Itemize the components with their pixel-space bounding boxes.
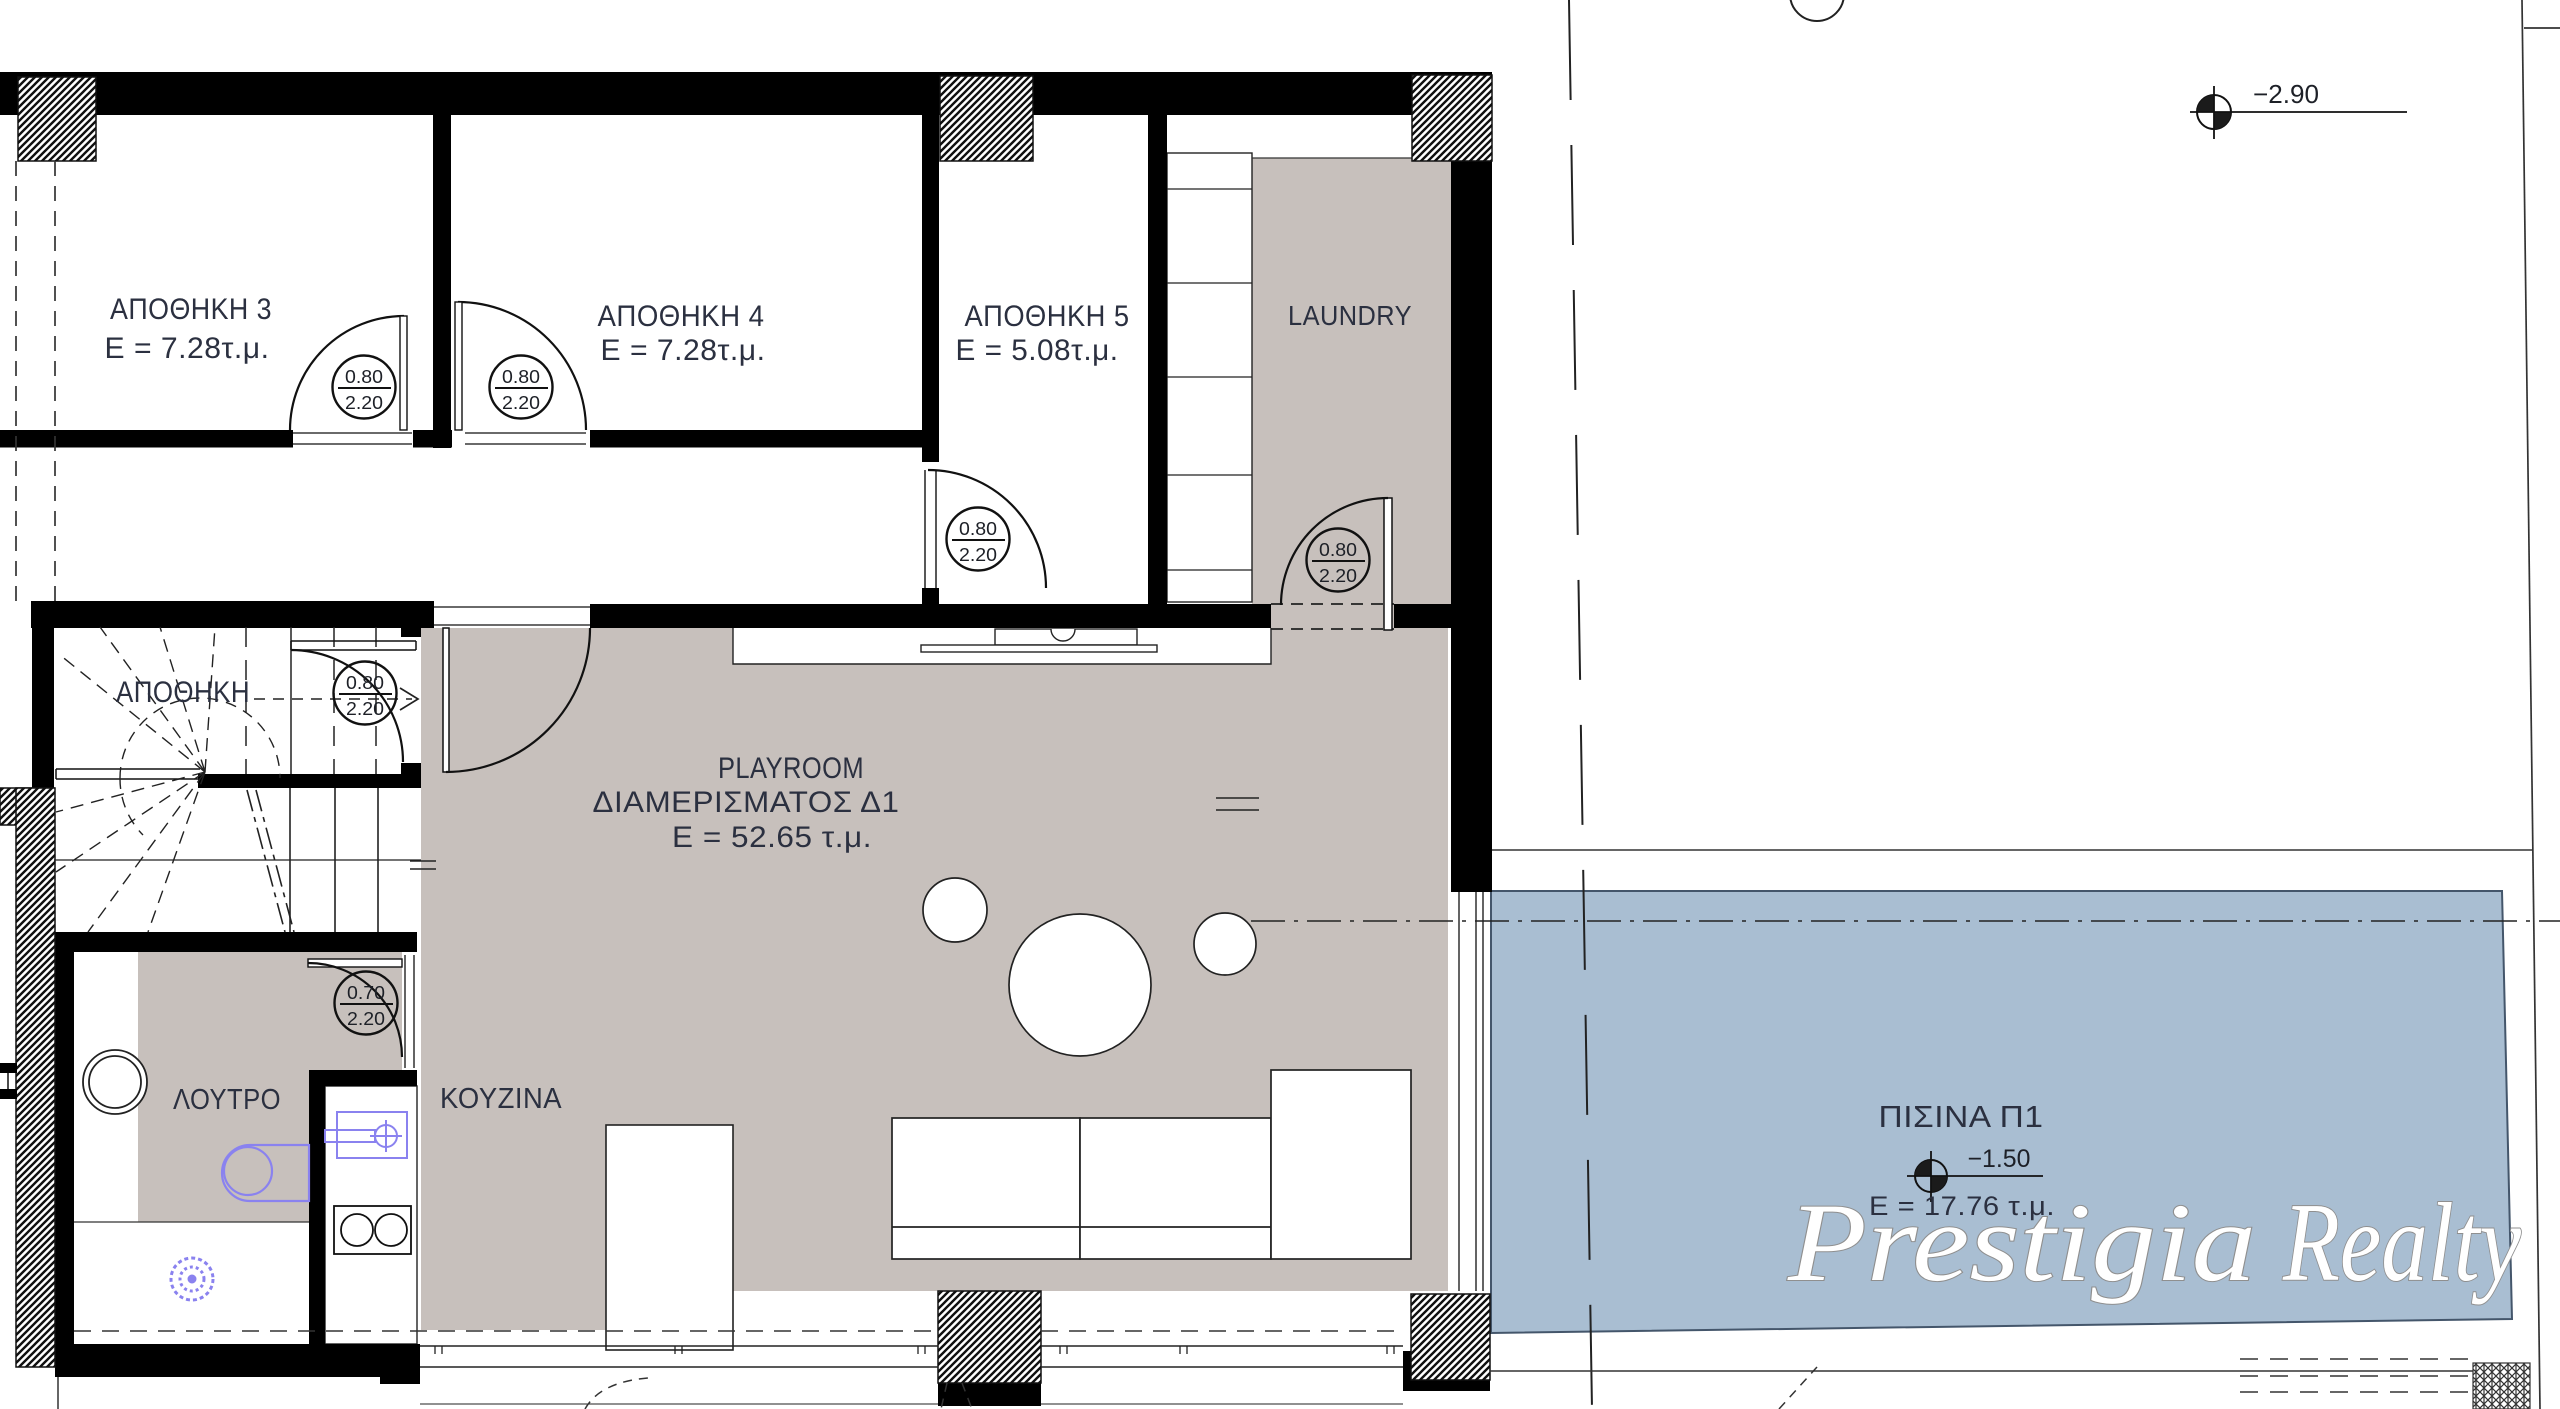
svg-text:2.20: 2.20	[347, 1009, 385, 1029]
svg-text:ΚΟΥΖΙΝΑ: ΚΟΥΖΙΝΑ	[440, 1083, 562, 1115]
svg-text:0.80: 0.80	[959, 519, 997, 539]
svg-text:2.20: 2.20	[345, 393, 383, 413]
svg-text:Ε = 52.65 τ.μ.: Ε = 52.65 τ.μ.	[672, 821, 872, 854]
svg-text:ΛΟΥΤΡΟ: ΛΟΥΤΡΟ	[173, 1084, 281, 1116]
svg-text:0.80: 0.80	[502, 367, 540, 387]
svg-text:2.20: 2.20	[1319, 566, 1357, 586]
svg-text:Ε = 5.08τ.μ.: Ε = 5.08τ.μ.	[956, 334, 1119, 367]
svg-text:Ε = 7.28τ.μ.: Ε = 7.28τ.μ.	[105, 332, 270, 365]
svg-text:0.80: 0.80	[346, 673, 384, 693]
svg-text:Realty: Realty	[2282, 1181, 2521, 1305]
svg-text:ΑΠΟΘΗΚΗ 3: ΑΠΟΘΗΚΗ 3	[110, 293, 272, 326]
svg-text:Ε = 7.28τ.μ.: Ε = 7.28τ.μ.	[601, 334, 766, 367]
svg-text:ΠΙΣΙΝΑ Π1: ΠΙΣΙΝΑ Π1	[1879, 1099, 2044, 1134]
svg-text:ΔΙΑΜΕΡΙΣΜΑΤΟΣ Δ1: ΔΙΑΜΕΡΙΣΜΑΤΟΣ Δ1	[593, 786, 900, 819]
svg-text:PLAYROOM: PLAYROOM	[718, 752, 864, 785]
svg-text:2.20: 2.20	[346, 699, 384, 719]
svg-text:ΑΠΟΘΗΚΗ 5: ΑΠΟΘΗΚΗ 5	[965, 300, 1130, 333]
svg-text:Ε = 17.76 τ.μ.: Ε = 17.76 τ.μ.	[1869, 1191, 2055, 1221]
svg-text:0.80: 0.80	[345, 367, 383, 387]
svg-text:LAUNDRY: LAUNDRY	[1288, 300, 1412, 331]
svg-text:0.70: 0.70	[347, 983, 385, 1003]
svg-text:−2.90: −2.90	[2253, 79, 2319, 109]
svg-text:−1.50: −1.50	[1968, 1145, 2031, 1173]
svg-text:0.80: 0.80	[1319, 540, 1357, 560]
svg-text:2.20: 2.20	[502, 393, 540, 413]
svg-text:ΑΠΟΘΗΚΗ: ΑΠΟΘΗΚΗ	[116, 676, 250, 709]
svg-text:ΑΠΟΘΗΚΗ 4: ΑΠΟΘΗΚΗ 4	[598, 300, 765, 333]
svg-text:2.20: 2.20	[959, 545, 997, 565]
